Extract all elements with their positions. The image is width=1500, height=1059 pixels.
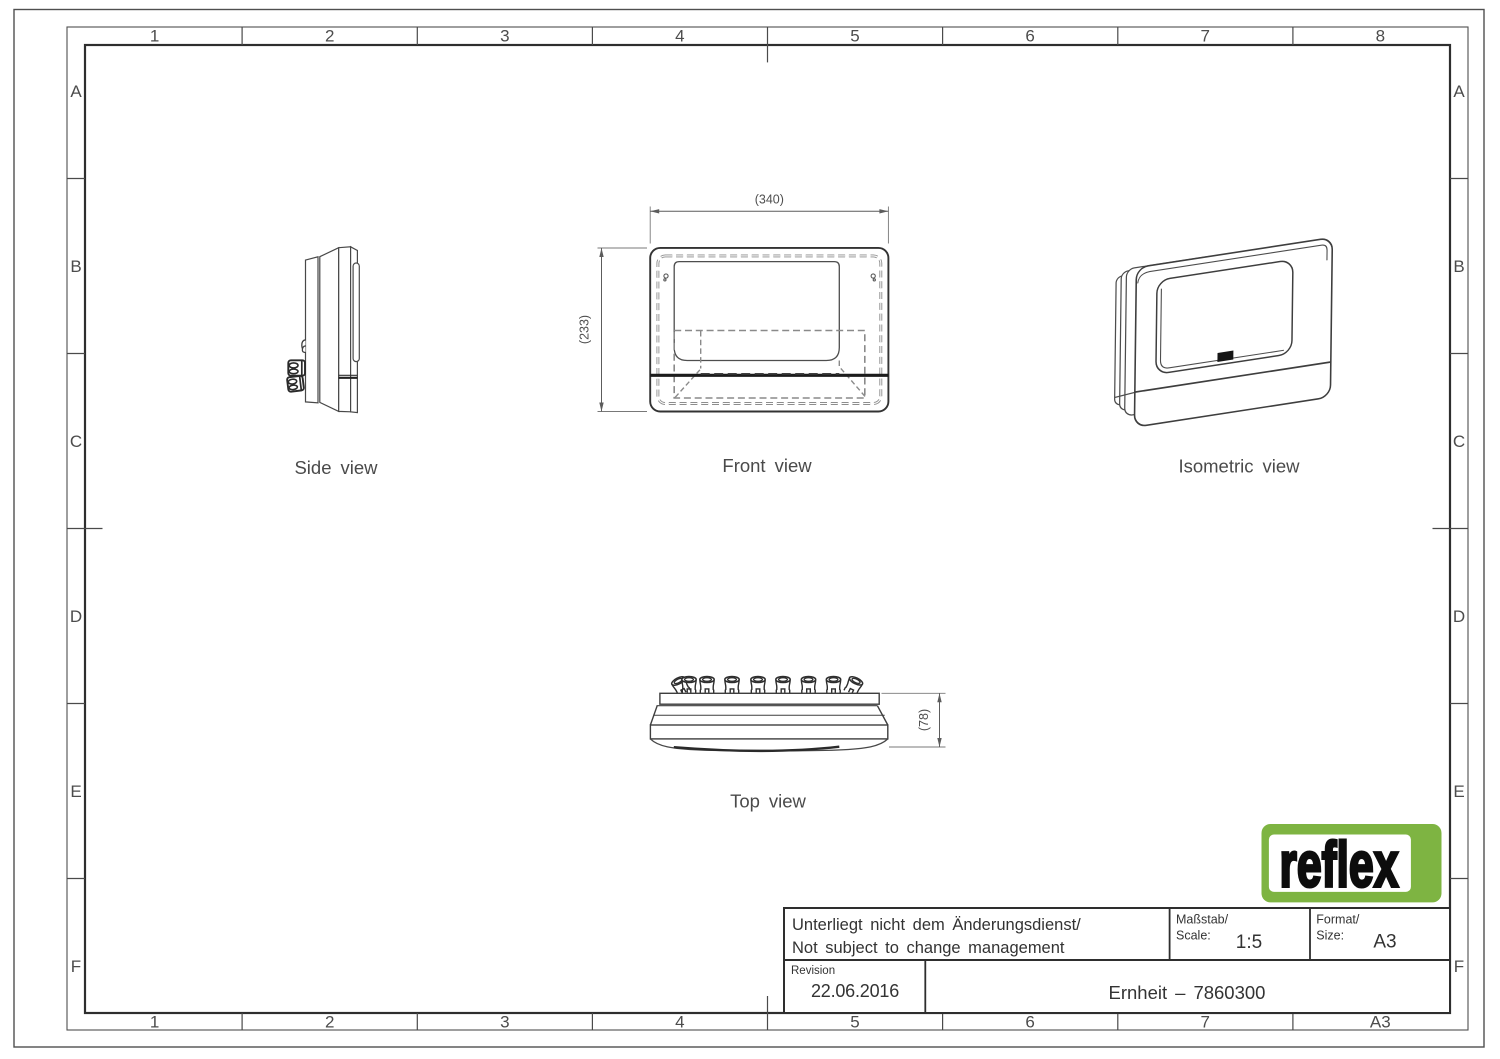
svg-text:D: D <box>70 607 82 626</box>
svg-text:B: B <box>1453 257 1464 276</box>
svg-text:Not subject to change manageme: Not subject to change management <box>792 939 1065 957</box>
svg-text:1: 1 <box>150 27 159 46</box>
svg-text:(78): (78) <box>917 709 931 731</box>
svg-text:1: 1 <box>150 1013 159 1032</box>
svg-text:E: E <box>1453 782 1464 801</box>
svg-text:Size:: Size: <box>1316 929 1344 943</box>
svg-text:3: 3 <box>500 1013 509 1032</box>
svg-text:Maßstab/: Maßstab/ <box>1176 913 1229 927</box>
svg-text:Format/: Format/ <box>1316 913 1360 927</box>
svg-text:A: A <box>1453 82 1465 101</box>
svg-text:C: C <box>1453 432 1465 451</box>
svg-text:A3: A3 <box>1370 1013 1391 1032</box>
svg-text:7: 7 <box>1200 1013 1209 1032</box>
svg-text:3: 3 <box>500 27 509 46</box>
svg-text:2: 2 <box>325 1013 334 1032</box>
svg-text:6: 6 <box>1025 27 1034 46</box>
svg-text:5: 5 <box>850 27 859 46</box>
svg-text:22.06.2016: 22.06.2016 <box>811 981 899 1001</box>
svg-text:(340): (340) <box>755 193 784 207</box>
svg-text:4: 4 <box>675 27 684 46</box>
svg-text:A: A <box>70 82 82 101</box>
svg-text:F: F <box>71 957 81 976</box>
svg-text:2: 2 <box>325 27 334 46</box>
svg-text:6: 6 <box>1025 1013 1034 1032</box>
svg-text:E: E <box>70 782 81 801</box>
svg-text:C: C <box>70 432 82 451</box>
svg-text:D: D <box>1453 607 1465 626</box>
svg-text:8: 8 <box>1376 27 1385 46</box>
svg-text:5: 5 <box>850 1013 859 1032</box>
svg-text:B: B <box>70 257 81 276</box>
svg-text:Scale:: Scale: <box>1176 929 1211 943</box>
svg-text:4: 4 <box>675 1013 684 1032</box>
svg-text:Unterliegt nicht dem Änderungs: Unterliegt nicht dem Änderungsdienst/ <box>792 916 1081 934</box>
svg-text:Revision: Revision <box>791 965 835 977</box>
svg-text:(233): (233) <box>578 315 592 344</box>
svg-text:reflex: reflex <box>1280 829 1399 901</box>
svg-text:F: F <box>1454 957 1464 976</box>
svg-text:A3: A3 <box>1373 932 1396 953</box>
svg-text:Isometricview: Isometricview <box>1178 456 1300 477</box>
svg-text:Topview: Topview <box>730 791 806 812</box>
svg-text:7: 7 <box>1200 27 1209 46</box>
svg-text:1:5: 1:5 <box>1236 932 1262 953</box>
